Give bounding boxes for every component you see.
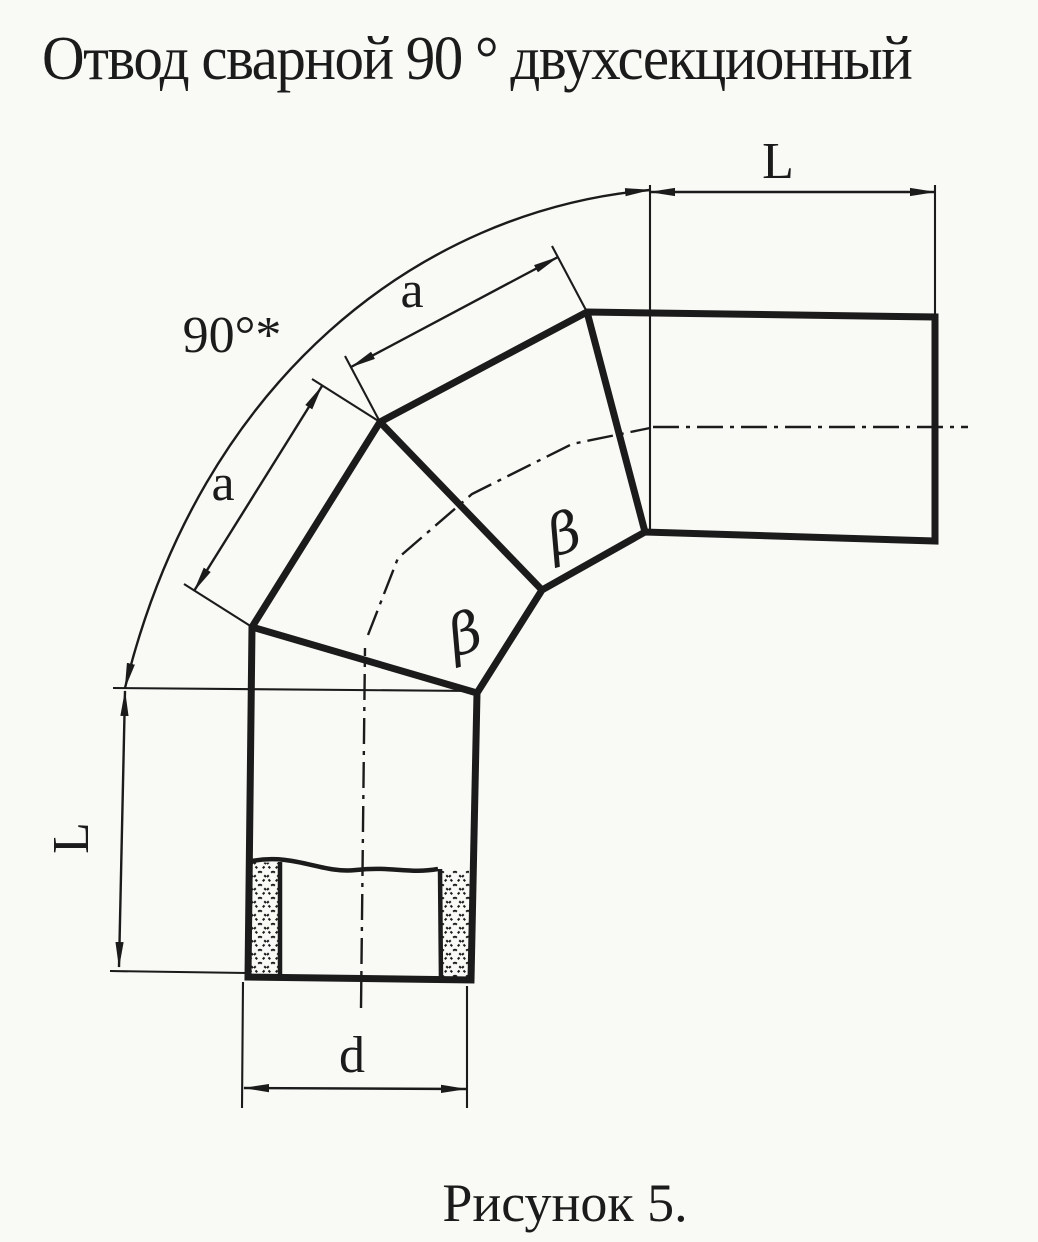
extension-line	[113, 688, 473, 691]
bevel-upper-label: β	[537, 499, 588, 571]
angle-arc	[125, 190, 650, 688]
pipe-contour	[248, 312, 935, 980]
pipe-outline	[248, 312, 935, 980]
extension-line	[110, 971, 247, 973]
angle-dim-90: 90°*	[125, 190, 650, 688]
extension-line	[552, 246, 587, 312]
hatch-right-border	[440, 869, 441, 980]
centerline-bend	[368, 428, 650, 635]
dimension-line	[244, 1088, 466, 1089]
bevel-angle-labels: β β	[438, 499, 588, 671]
scanned-page: Отвод сварной 90 ° двухсекционный 90°* L	[0, 0, 1038, 1242]
extension-line	[242, 982, 243, 1108]
dim-L-top-label: L	[762, 133, 794, 190]
bevel-lower-label: β	[438, 599, 489, 671]
dim-d-label: d	[339, 1027, 365, 1084]
dimension-line	[351, 257, 558, 367]
dim-a-lower-label: a	[211, 455, 234, 512]
dimension-line	[119, 691, 125, 967]
elbow-drawing: 90°* L L a a	[0, 0, 1038, 1242]
weld-seam-middle	[380, 422, 542, 590]
dim-L-top: L	[650, 133, 935, 530]
figure-caption: Рисунок 5.	[300, 1172, 830, 1234]
centerline-vertical	[361, 648, 365, 1008]
angle-label: 90°*	[183, 307, 282, 364]
hatch-right	[439, 869, 471, 979]
dim-d: d	[242, 982, 467, 1108]
hatch-left	[250, 862, 280, 975]
dim-a-lower: a	[184, 379, 380, 627]
extension-line	[312, 379, 380, 422]
dim-a-upper-label: a	[400, 262, 423, 319]
dim-L-left-label: L	[43, 822, 100, 854]
weld-seam-upper	[587, 312, 645, 532]
